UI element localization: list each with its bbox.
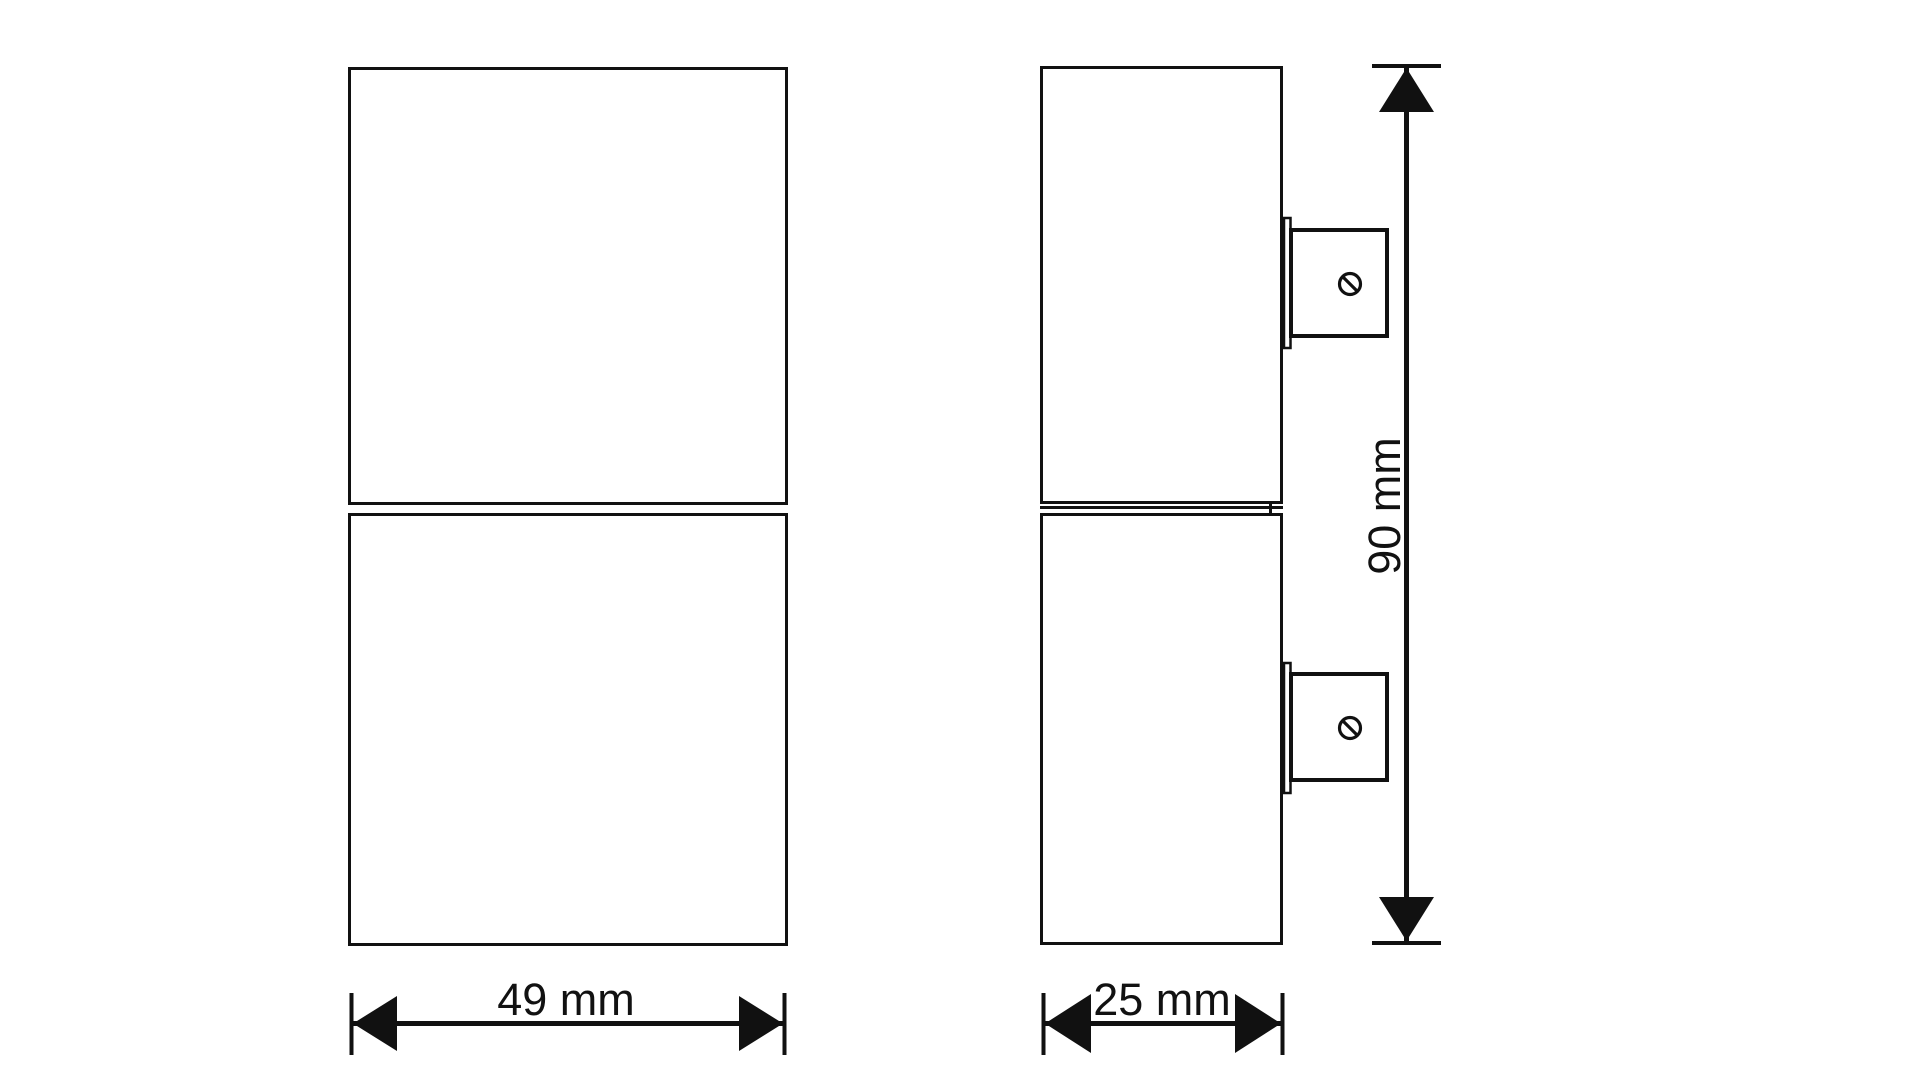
front-view [350, 69, 787, 945]
drawing-svg: 49 mm 25 mm 90 mm [0, 0, 1920, 1079]
depth-dimension-label: 25 mm [1093, 974, 1231, 1025]
arrow-right-icon [739, 996, 783, 1051]
front-view-upper-body [350, 69, 787, 504]
technical-drawing: 49 mm 25 mm 90 mm [0, 0, 1920, 1079]
width-dimension: 49 mm [352, 974, 785, 1055]
screw-icon [1340, 274, 1361, 295]
height-dimension-label: 90 mm [1359, 437, 1410, 575]
arrow-right-icon [1235, 994, 1281, 1053]
depth-dimension: 25 mm [1044, 974, 1283, 1055]
arrow-left-icon [353, 996, 397, 1051]
arrow-up-icon [1379, 68, 1434, 112]
lower-mounting-bracket [1284, 663, 1387, 793]
side-view-lower-body [1042, 515, 1282, 944]
side-view-upper-body [1042, 68, 1282, 503]
height-dimension: 90 mm [1359, 66, 1441, 943]
upper-mounting-bracket [1284, 218, 1387, 348]
width-dimension-label: 49 mm [497, 974, 635, 1025]
side-view [1040, 68, 1387, 944]
arrow-left-icon [1045, 994, 1091, 1053]
screw-icon [1340, 718, 1361, 739]
front-view-lower-body [350, 515, 787, 945]
arrow-down-icon [1379, 897, 1434, 941]
